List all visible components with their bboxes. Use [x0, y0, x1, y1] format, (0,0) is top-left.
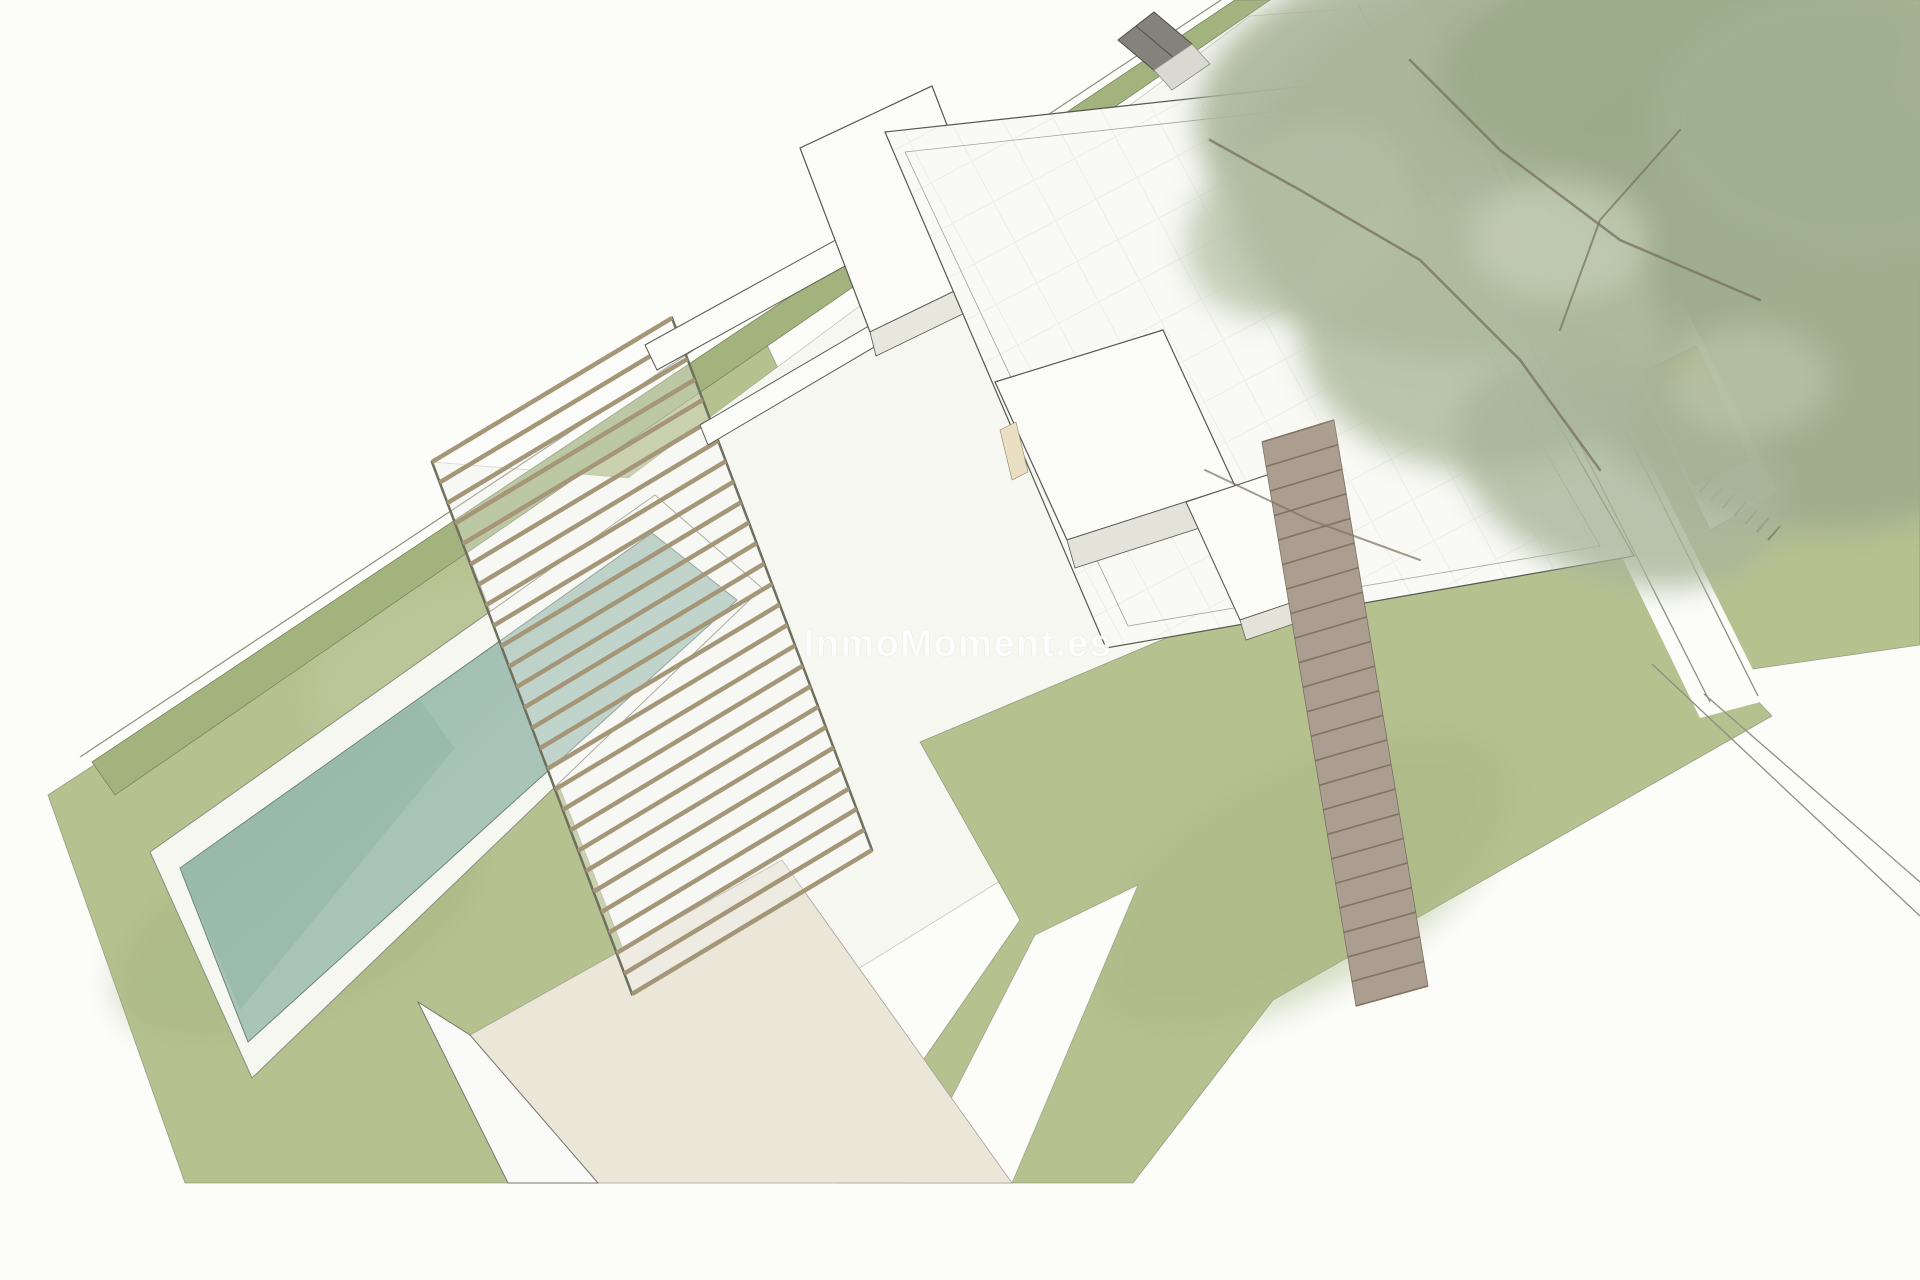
- watermark-text: InmoMoment.es: [804, 623, 1113, 665]
- site-plan-rendering: InmoMoment.es: [0, 0, 1920, 1280]
- architectural-render-page: InmoMoment.es: [0, 0, 1920, 1280]
- tree-canopy-highlight-2: [1670, 325, 1830, 435]
- drawing-bottom-cut: [0, 1185, 1920, 1280]
